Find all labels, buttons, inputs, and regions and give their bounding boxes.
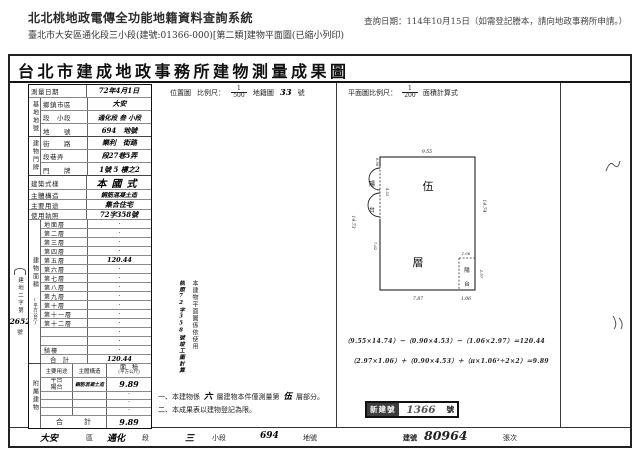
- annex-area-header: 面 積 (平方公尺): [107, 364, 151, 377]
- floor-label: [41, 328, 88, 336]
- margin-scribble-upper: [604, 158, 622, 174]
- floor-label: 騎樓: [41, 346, 88, 354]
- annex-area-value: 9.89: [107, 378, 151, 391]
- area-formula-main: （9.55×14.74）－（0.90×4.53）－（1.06×2.97）＝120…: [344, 336, 545, 345]
- floor-label: 第六層: [41, 265, 88, 273]
- footer-district: 大安: [40, 431, 58, 444]
- district-value: 大安: [88, 98, 151, 110]
- floor-area-row: 第九層 ·: [41, 292, 151, 301]
- location-scale-label: 比例尺：: [197, 88, 225, 98]
- floor-area-row: 合計 120.44: [41, 355, 151, 364]
- floor-value: ·: [88, 247, 151, 255]
- location-scale-fraction: 1 500: [231, 86, 247, 99]
- floor-label: 第九層: [41, 292, 88, 300]
- document-info-line: 臺北市大安區通化段三小段(建號:01366-000)[第二類]建物平面圖(已縮小…: [28, 28, 344, 41]
- dim-corner-right: 2.97: [479, 269, 484, 279]
- new-building-number-stamp: 新建號 1366 號: [365, 401, 459, 418]
- floor-value: ·: [88, 301, 151, 309]
- floor-value: ·: [88, 346, 151, 354]
- parcel-row: 地 號 694 地號: [41, 124, 151, 137]
- floor-value: 120.44: [88, 256, 151, 264]
- plan-dimensions: 9.55 14.73 14.74 7.87 1.06 0.90 4.53 7.6…: [350, 149, 487, 302]
- annex-use-header: 主要用途: [41, 364, 73, 377]
- floor-label: 第七層: [41, 274, 88, 282]
- floor-value: ·: [88, 274, 151, 282]
- cadastral-map-label: 地籍圖: [253, 88, 274, 98]
- floor-label: 第二層: [41, 229, 88, 237]
- corner-balcony-char1: 陽: [464, 266, 470, 274]
- footer-building-label: 建號: [403, 433, 417, 443]
- dim-left: 14.73: [350, 215, 356, 228]
- survey-form-table: 測量日期 72年4月1日 基地地號 鄉鎮市區 大安 段 小段 通化段 叁 小段: [28, 84, 152, 429]
- stamp-suffix: 號: [444, 404, 458, 415]
- lane-alley-label: 段巷弄: [41, 150, 88, 162]
- query-date-line: 查詢日期：114年10月15日（如需登記謄本，請向地政事務所申請。）: [364, 15, 627, 27]
- survey-date-row: 測量日期 72年4月1日: [29, 85, 151, 98]
- floor-label: [41, 337, 88, 345]
- lane-alley-value: 段27巷5弄: [88, 150, 151, 162]
- street-row: 街 路 樂利 街路: [41, 137, 151, 150]
- dim-bump-span: 4.53: [385, 187, 390, 197]
- note1-prefix: 一、本建物係: [158, 393, 200, 401]
- note1-floor-measured: 伍: [280, 392, 297, 402]
- footer-section-suffix: 段: [142, 433, 149, 443]
- floor-value: ·: [88, 292, 151, 300]
- annex-blank-structure: [73, 400, 107, 407]
- footer-guide-line: [38, 446, 540, 447]
- floor-value: ·: [88, 229, 151, 237]
- survey-date-label: 測量日期: [29, 85, 87, 97]
- floor-area-row: 第十一層 ·: [41, 310, 151, 319]
- floor-value: ·: [88, 238, 151, 246]
- dim-corner-top: 1.06: [462, 251, 471, 256]
- file-number-prefix: 建地二字第: [16, 277, 24, 315]
- note1-floor-count: 六: [200, 392, 217, 402]
- floor-area-row: 第七層 ·: [41, 274, 151, 283]
- system-title: 北北桃地政電傳全功能地籍資料查詢系統: [28, 9, 253, 26]
- margin-scribble-lower: [610, 314, 626, 332]
- annex-structure-header: 主體構造: [73, 364, 107, 377]
- floor-plan-drawing: 伍 層 陽 台 陽 台 9.55 14.73 14.74 7.87 1.06 0…: [340, 94, 570, 344]
- floor-label: 第八層: [41, 283, 88, 291]
- door-number-value: 1號 5 樓之2: [88, 163, 151, 176]
- structure-label: 主體構造: [29, 190, 87, 199]
- dim-wall-lower: 7.62: [373, 242, 378, 251]
- license-row: 使用執照 72字358號: [29, 210, 151, 220]
- annex-balcony-row: 平台 陽台 鋼筋混凝土造 9.89: [41, 378, 151, 392]
- room-floor-label-lower: 層: [413, 256, 424, 269]
- annex-blank-use: [41, 392, 73, 399]
- footer-subsection: 三: [185, 431, 194, 444]
- building-style-row: 建築式樣 本國式: [29, 176, 151, 190]
- dim-top: 9.55: [422, 149, 432, 155]
- main-use-value: 集合住宅: [87, 200, 151, 209]
- footer-district-suffix: 區: [86, 433, 93, 443]
- annex-total-row: 合 計 9.89: [41, 416, 151, 428]
- divider-vertical-left: [336, 83, 337, 427]
- lane-alley-row: 段巷弄 段27巷5弄: [41, 150, 151, 163]
- floor-value: ·: [88, 337, 151, 345]
- floor-value: 120.44: [88, 355, 151, 363]
- location-map-label: 位置圖: [170, 88, 191, 98]
- floor-value: ·: [88, 328, 151, 336]
- building-address-group: 建物門牌 街 路 樂利 街路 段巷弄 段27巷5弄 門 牌 1號 5 樓之2: [29, 137, 151, 176]
- dim-bottom-corner: 1.06: [461, 296, 471, 302]
- annex-area-header-unit: (平方公尺): [118, 371, 140, 376]
- license-value: 72字358號: [87, 210, 151, 219]
- door-group-label-col: 建物門牌: [29, 137, 41, 175]
- floor-label: 第四層: [41, 247, 88, 255]
- floor-area-row: 第十二層 ·: [41, 319, 151, 328]
- area-group-label: 建物面積 (平方公尺): [32, 257, 38, 326]
- building-style-value: 本國式: [87, 176, 151, 189]
- annex-group-label-col: 附屬建物: [29, 364, 41, 428]
- floor-area-row: 地面層 ·: [41, 220, 151, 229]
- area-group-title: 建物面積: [32, 257, 39, 289]
- floor-label: 第五層: [41, 256, 88, 264]
- annex-building-group: 附屬建物 主要用途 主體構造 面 積 (平方公尺) 平台 陽: [29, 364, 151, 428]
- structure-value: 鋼筋混凝土造: [87, 190, 151, 199]
- vertical-source-note: 本建物平面圖係依使用 執照72字358號竣工圖計算: [172, 280, 199, 386]
- annex-use-line2: 陽台: [50, 385, 62, 392]
- parcel-label: 地 號: [41, 124, 88, 137]
- annex-blank-structure: [73, 392, 107, 399]
- door-number-row: 門 牌 1號 5 樓之2: [41, 163, 151, 176]
- area-group-unit: (平方公尺): [33, 298, 38, 326]
- door-number-label: 門 牌: [41, 163, 88, 176]
- file-number-suffix: 號: [17, 328, 23, 336]
- page: 北北桃地政電傳全功能地籍資料查詢系統 查詢日期：114年10月15日（如需登記謄…: [0, 0, 640, 451]
- annex-blank-area: ·: [107, 392, 151, 399]
- floor-value: ·: [88, 310, 151, 318]
- left-balcony-char2: 台: [369, 206, 375, 214]
- door-group-label: 建物門牌: [32, 140, 38, 172]
- note-1: 一、本建物係六層建物本件僅測量第伍層部分。: [158, 390, 324, 402]
- main-use-label: 主要用途: [29, 200, 87, 209]
- survey-document: 台北市建成地政事務所建物測量成果圖 建地二字第 2652 號 測量日期 72年4…: [8, 54, 632, 448]
- corner-balcony-char2: 台: [464, 280, 470, 288]
- site-group-label-col: 基地地號: [29, 98, 41, 136]
- footer-building-number: 80964: [424, 428, 468, 443]
- section-row: 段 小段 通化段 叁 小段: [41, 111, 151, 124]
- margin-arc-mark: [14, 268, 26, 275]
- floor-value: ·: [88, 283, 151, 291]
- annex-blank-row: ·: [41, 400, 151, 408]
- annex-total-label: 合 計: [41, 416, 107, 428]
- footer-subsection-suffix: 小段: [212, 433, 226, 443]
- annex-use-value: 平台 陽台: [41, 378, 73, 391]
- annex-total-value: 9.89: [107, 416, 151, 428]
- section-value: 通化段 叁 小段: [88, 111, 151, 123]
- vertical-note-col2: 執照72字358號竣工圖計算: [177, 280, 185, 386]
- footer-parcel-suffix: 地號: [303, 433, 317, 443]
- floor-area-row: 騎樓 ·: [41, 346, 151, 355]
- floor-area-row: 第六層 ·: [41, 265, 151, 274]
- stamp-number: 1366: [399, 404, 444, 416]
- floor-label: 第十層: [41, 301, 88, 309]
- footer-section: 通化: [107, 431, 125, 444]
- annex-structure-value: 鋼筋混凝土造: [73, 378, 107, 391]
- survey-date-value: 72年4月1日: [87, 85, 151, 97]
- floor-value: ·: [88, 265, 151, 273]
- annex-blank-structure: [73, 408, 107, 415]
- dim-bump-depth: 0.90: [375, 158, 380, 167]
- street-value: 樂利 街路: [88, 137, 151, 149]
- area-group-label-col: 建物面積 (平方公尺): [29, 220, 41, 363]
- structure-row: 主體構造 鋼筋混凝土造: [29, 190, 151, 200]
- annex-blank-area: ·: [107, 400, 151, 407]
- annex-blank-use: [41, 408, 73, 415]
- floor-area-row: 第二層 ·: [41, 229, 151, 238]
- floor-value: ·: [88, 319, 151, 327]
- site-group-label: 基地地號: [32, 101, 38, 133]
- main-use-row: 主要用途 集合住宅: [29, 200, 151, 210]
- floor-rows-container: 地面層 · 第二層 · 第三層 · 第四層 · 第五層: [41, 220, 151, 363]
- floor-area-row: ·: [41, 328, 151, 337]
- left-balcony-char1: 陽: [369, 180, 375, 188]
- location-scale-denominator: 500: [233, 93, 244, 99]
- floor-area-row: 第四層 ·: [41, 247, 151, 256]
- floor-area-row: 第十層 ·: [41, 301, 151, 310]
- floor-label: 第三層: [41, 238, 88, 246]
- note1-middle: 層建物本件僅測量第: [217, 393, 280, 401]
- annex-group-label: 附屬建物: [32, 380, 38, 412]
- plan-text-labels: 伍 層 陽 台 陽 台: [369, 180, 470, 288]
- floor-label: 合計: [41, 355, 88, 363]
- district-label: 鄉鎮市區: [41, 98, 88, 110]
- section-label: 段 小段: [41, 111, 88, 123]
- document-title: 台北市建成地政事務所建物測量成果圖: [18, 58, 350, 82]
- street-label: 街 路: [41, 137, 88, 149]
- parcel-value: 694 地號: [88, 124, 151, 137]
- floor-area-row: ·: [41, 337, 151, 346]
- floor-area-row: 第八層 ·: [41, 283, 151, 292]
- dim-bottom-main: 7.87: [413, 296, 423, 302]
- annex-blank-area: ·: [107, 408, 151, 415]
- footer-sheet-label: 張次: [503, 433, 517, 443]
- cadastral-sheet-suffix: 號: [298, 88, 305, 98]
- stamp-label: 新建號: [367, 403, 399, 416]
- building-area-group: 建物面積 (平方公尺) 地面層 · 第二層 · 第三層 ·: [29, 220, 151, 364]
- annex-blank-row: ·: [41, 392, 151, 400]
- note1-suffix: 層部分。: [296, 393, 324, 401]
- floor-area-row: 第三層 ·: [41, 238, 151, 247]
- annex-header-row: 主要用途 主體構造 面 積 (平方公尺): [41, 364, 151, 378]
- area-formula-annex: （2.97×1.06）＋（0.90×4.53）＋（π×1.06²÷2×2）＝9.…: [350, 356, 549, 365]
- left-margin-file-number: 建地二字第 2652 號: [12, 268, 28, 336]
- building-style-label: 建築式樣: [29, 176, 87, 189]
- site-parcel-group: 基地地號 鄉鎮市區 大安 段 小段 通化段 叁 小段 地 號 694 地號: [29, 98, 151, 137]
- location-map-scale-line: 位置圖 比例尺： 1 500 地籍圖 33 號: [170, 86, 305, 99]
- note-2: 二、本成果表以建物登記為限。: [158, 405, 256, 415]
- dim-right: 14.74: [481, 199, 487, 212]
- floor-label: 第十一層: [41, 310, 88, 318]
- cadastral-sheet-number: 33: [280, 88, 292, 98]
- annex-blank-row: ·: [41, 408, 151, 416]
- floor-label: 第十二層: [41, 319, 88, 327]
- vertical-note-col1: 本建物平面圖係依使用: [190, 280, 199, 386]
- floor-area-row: 第五層 120.44: [41, 256, 151, 265]
- title-rule: [10, 81, 630, 83]
- floor-label: 地面層: [41, 220, 88, 228]
- plan-outline: [380, 157, 475, 290]
- district-row: 鄉鎮市區 大安: [41, 98, 151, 111]
- annex-blank-use: [41, 400, 73, 407]
- footer-parcel-number: 694: [260, 431, 279, 441]
- floor-value: ·: [88, 220, 151, 228]
- room-floor-label-upper: 伍: [423, 180, 434, 193]
- license-label: 使用執照: [29, 210, 87, 219]
